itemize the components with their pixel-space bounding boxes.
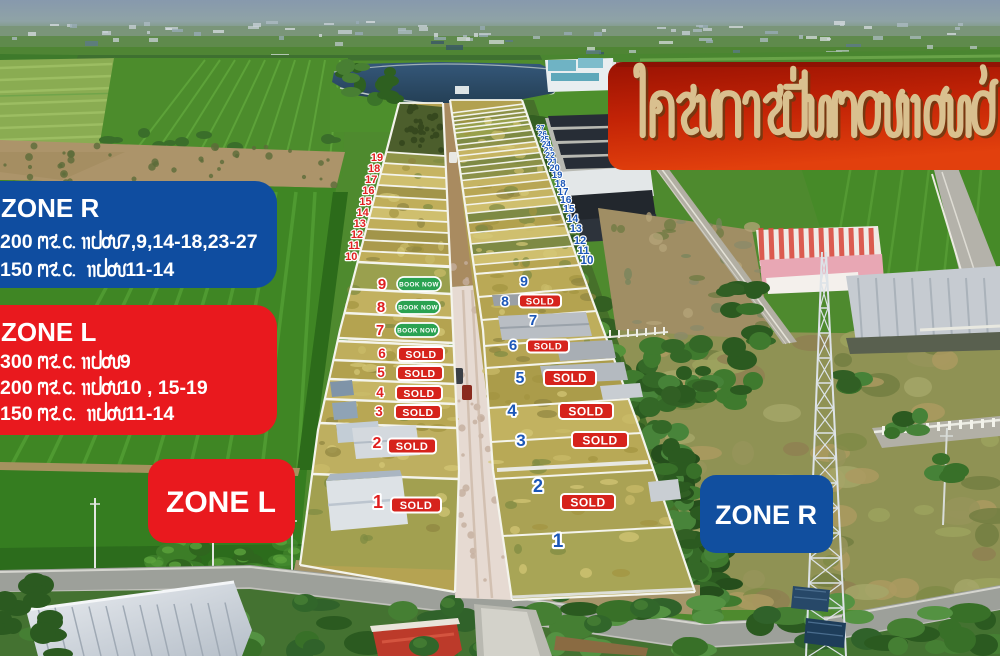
svg-text:2: 2 — [533, 476, 543, 496]
svg-text:150: 150 — [0, 403, 33, 425]
svg-text:4: 4 — [507, 401, 517, 420]
svg-text:300: 300 — [0, 351, 33, 373]
svg-text:200: 200 — [0, 231, 33, 253]
svg-text:3: 3 — [516, 431, 525, 450]
svg-text:9: 9 — [520, 273, 528, 289]
svg-text:3: 3 — [375, 404, 383, 419]
svg-text:BOOK NOW: BOOK NOW — [399, 281, 439, 288]
svg-text:ZONE L: ZONE L — [166, 486, 276, 519]
svg-text:5: 5 — [516, 370, 525, 387]
svg-text:2: 2 — [373, 435, 382, 452]
svg-text:11-14: 11-14 — [125, 259, 174, 281]
svg-text:SOLD: SOLD — [403, 388, 434, 400]
svg-text:SOLD: SOLD — [402, 407, 433, 419]
svg-text:ZONE L: ZONE L — [1, 317, 96, 347]
svg-text:ZONE R: ZONE R — [715, 500, 817, 530]
svg-text:9: 9 — [120, 351, 131, 373]
svg-text:7,9,14-18,23-27: 7,9,14-18,23-27 — [120, 231, 258, 253]
svg-text:200: 200 — [0, 377, 33, 399]
svg-text:150: 150 — [0, 259, 33, 281]
svg-text:SOLD: SOLD — [570, 495, 605, 509]
svg-text:1: 1 — [373, 492, 383, 512]
svg-text:8: 8 — [377, 299, 385, 316]
svg-text:SOLD: SOLD — [526, 296, 554, 307]
svg-text:1: 1 — [553, 531, 564, 552]
svg-text:SOLD: SOLD — [405, 349, 436, 361]
svg-text:SOLD: SOLD — [404, 368, 435, 380]
svg-text:5: 5 — [377, 365, 385, 380]
svg-text:7: 7 — [376, 322, 384, 339]
svg-text:10 , 15-19: 10 , 15-19 — [120, 377, 208, 399]
svg-text:8: 8 — [501, 293, 509, 309]
svg-text:SOLD: SOLD — [534, 341, 562, 352]
svg-text:SOLD: SOLD — [582, 433, 617, 447]
svg-text:4: 4 — [376, 385, 384, 400]
svg-text:10: 10 — [581, 255, 594, 267]
svg-text:6: 6 — [509, 337, 517, 354]
svg-text:13: 13 — [570, 223, 582, 235]
svg-text:9: 9 — [378, 276, 386, 293]
svg-text:SOLD: SOLD — [396, 441, 429, 453]
svg-text:SOLD: SOLD — [553, 373, 587, 385]
svg-text:ZONE R: ZONE R — [1, 193, 99, 223]
svg-text:SOLD: SOLD — [400, 500, 433, 512]
svg-text:BOOK NOW: BOOK NOW — [397, 327, 437, 334]
svg-text:11-14: 11-14 — [125, 403, 174, 425]
svg-text:7: 7 — [529, 312, 537, 329]
svg-text:SOLD: SOLD — [568, 404, 603, 418]
svg-text:BOOK NOW: BOOK NOW — [398, 304, 438, 311]
svg-text:10: 10 — [345, 251, 357, 263]
svg-text:6: 6 — [378, 346, 386, 361]
